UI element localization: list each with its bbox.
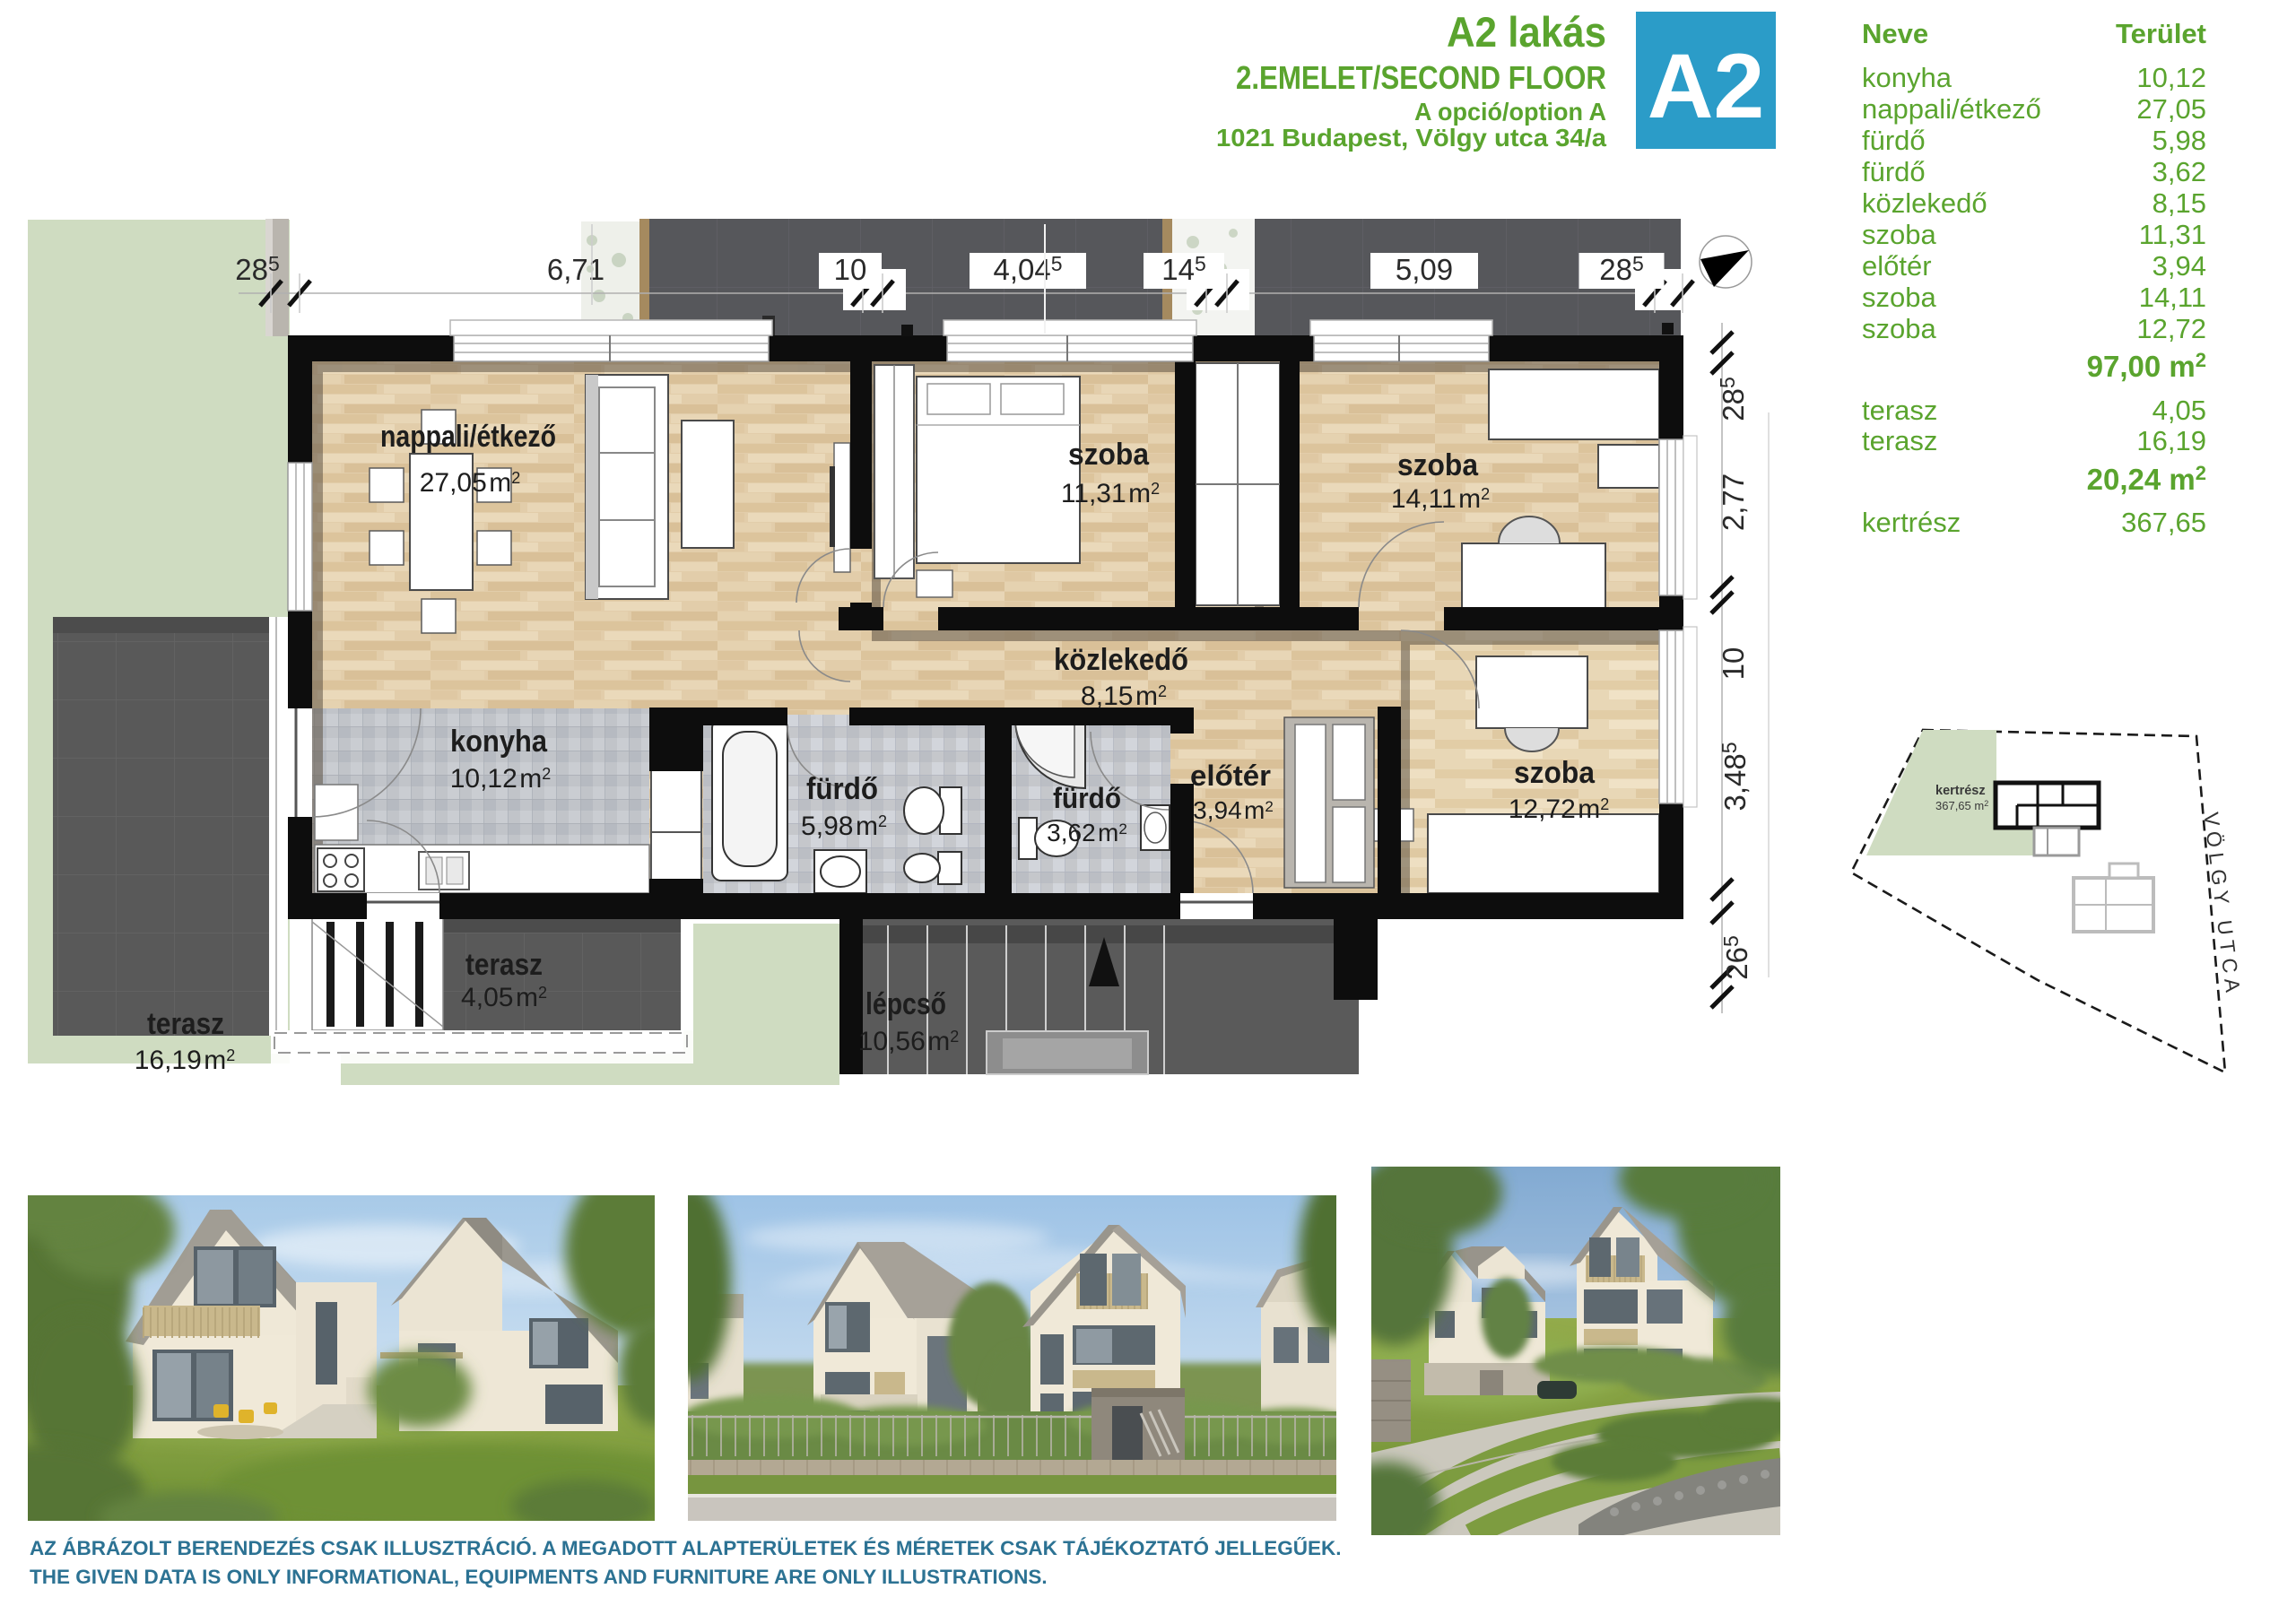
svg-text:szoba: szoba (1514, 756, 1596, 790)
svg-text:nappali/étkező: nappali/étkező (380, 420, 556, 454)
svg-text:fürdő: fürdő (1053, 782, 1121, 814)
svg-text:közlekedő: közlekedő (1862, 187, 1987, 219)
svg-text:előtér: előtér (1862, 250, 1932, 282)
svg-text:3,62 m2: 3,62 m2 (1047, 819, 1127, 846)
svg-text:97,00 m2: 97,00 m2 (2087, 349, 2206, 383)
svg-text:Neve: Neve (1862, 18, 1928, 49)
svg-text:Terület: Terület (2116, 18, 2206, 49)
svg-text:10: 10 (834, 253, 867, 286)
svg-text:terasz: terasz (147, 1007, 224, 1041)
svg-text:16,19 m2: 16,19 m2 (135, 1046, 236, 1075)
svg-text:A2: A2 (1648, 35, 1764, 137)
svg-text:10,12: 10,12 (2136, 62, 2206, 93)
svg-text:előtér: előtér (1190, 760, 1271, 792)
svg-text:367,65 m2: 367,65 m2 (1935, 799, 1988, 812)
svg-text:3,485: 3,485 (1718, 742, 1752, 811)
svg-text:8,15: 8,15 (2152, 187, 2206, 219)
svg-text:367,65: 367,65 (2121, 507, 2206, 538)
svg-text:konyha: konyha (1862, 62, 1952, 93)
svg-text:285: 285 (1716, 377, 1750, 421)
svg-text:2.EMELET/SECOND FLOOR: 2.EMELET/SECOND FLOOR (1236, 59, 1606, 96)
svg-text:terasz: terasz (1862, 395, 1937, 426)
svg-text:terasz: terasz (1862, 425, 1937, 456)
svg-text:A opció/option A: A opció/option A (1414, 98, 1606, 126)
svg-text:10,12 m2: 10,12 m2 (450, 764, 552, 794)
svg-text:27,05 m2: 27,05 m2 (420, 468, 521, 498)
svg-text:kertrész: kertrész (1935, 784, 1986, 798)
svg-text:lépcső: lépcső (865, 987, 946, 1021)
svg-text:3,62: 3,62 (2152, 156, 2206, 187)
svg-text:11,31 m2: 11,31 m2 (1061, 479, 1160, 508)
svg-text:szoba: szoba (1397, 448, 1479, 482)
svg-text:nappali/étkező: nappali/étkező (1862, 93, 2041, 125)
svg-text:fürdő: fürdő (1862, 125, 1926, 156)
svg-text:5,09: 5,09 (1396, 253, 1453, 286)
svg-text:szoba: szoba (1862, 313, 1936, 344)
svg-text:közlekedő: közlekedő (1054, 643, 1188, 677)
svg-text:4,05: 4,05 (2152, 395, 2206, 426)
svg-text:5,98 m2: 5,98 m2 (801, 812, 887, 841)
svg-text:terasz: terasz (465, 948, 543, 982)
svg-text:fürdő: fürdő (1862, 156, 1926, 187)
svg-text:4,05 m2: 4,05 m2 (461, 983, 547, 1012)
svg-text:szoba: szoba (1862, 282, 1936, 313)
svg-text:265: 265 (1719, 935, 1753, 980)
svg-text:12,72 m2: 12,72 m2 (1509, 794, 1610, 824)
svg-text:14,11 m2: 14,11 m2 (1391, 484, 1490, 514)
svg-text:27,05: 27,05 (2136, 93, 2206, 125)
svg-text:5,98: 5,98 (2152, 125, 2206, 156)
svg-text:12,72: 12,72 (2136, 313, 2206, 344)
svg-text:fürdő: fürdő (806, 772, 878, 806)
svg-text:kertrész: kertrész (1862, 507, 1961, 538)
svg-text:3,94: 3,94 (2152, 250, 2206, 282)
svg-text:10: 10 (1717, 647, 1750, 681)
svg-text:A2 lakás: A2 lakás (1447, 8, 1606, 56)
svg-text:14,11: 14,11 (2139, 282, 2206, 313)
svg-text:szoba: szoba (1862, 219, 1936, 250)
svg-text:8,15 m2: 8,15 m2 (1081, 681, 1167, 711)
svg-text:THE GIVEN DATA IS ONLY INFORMA: THE GIVEN DATA IS ONLY INFORMATIONAL, EQ… (30, 1566, 1048, 1588)
svg-text:konyha: konyha (450, 725, 548, 759)
svg-text:1021 Budapest, Völgy utca 34/a: 1021 Budapest, Völgy utca 34/a (1216, 124, 1606, 152)
svg-text:20,24 m2: 20,24 m2 (2087, 462, 2206, 496)
svg-text:3,94 m2: 3,94 m2 (1193, 796, 1274, 824)
svg-text:6,71: 6,71 (547, 253, 604, 286)
svg-text:10,56 m2: 10,56 m2 (858, 1027, 960, 1056)
svg-text:2,77: 2,77 (1717, 473, 1750, 531)
svg-text:16,19: 16,19 (2136, 425, 2206, 456)
svg-text:szoba: szoba (1068, 438, 1150, 472)
svg-text:AZ ÁBRÁZOLT BERENDEZÉS CSAK IL: AZ ÁBRÁZOLT BERENDEZÉS CSAK ILLUSZTRÁCIÓ… (30, 1537, 1342, 1559)
svg-text:11,31: 11,31 (2139, 219, 2206, 250)
